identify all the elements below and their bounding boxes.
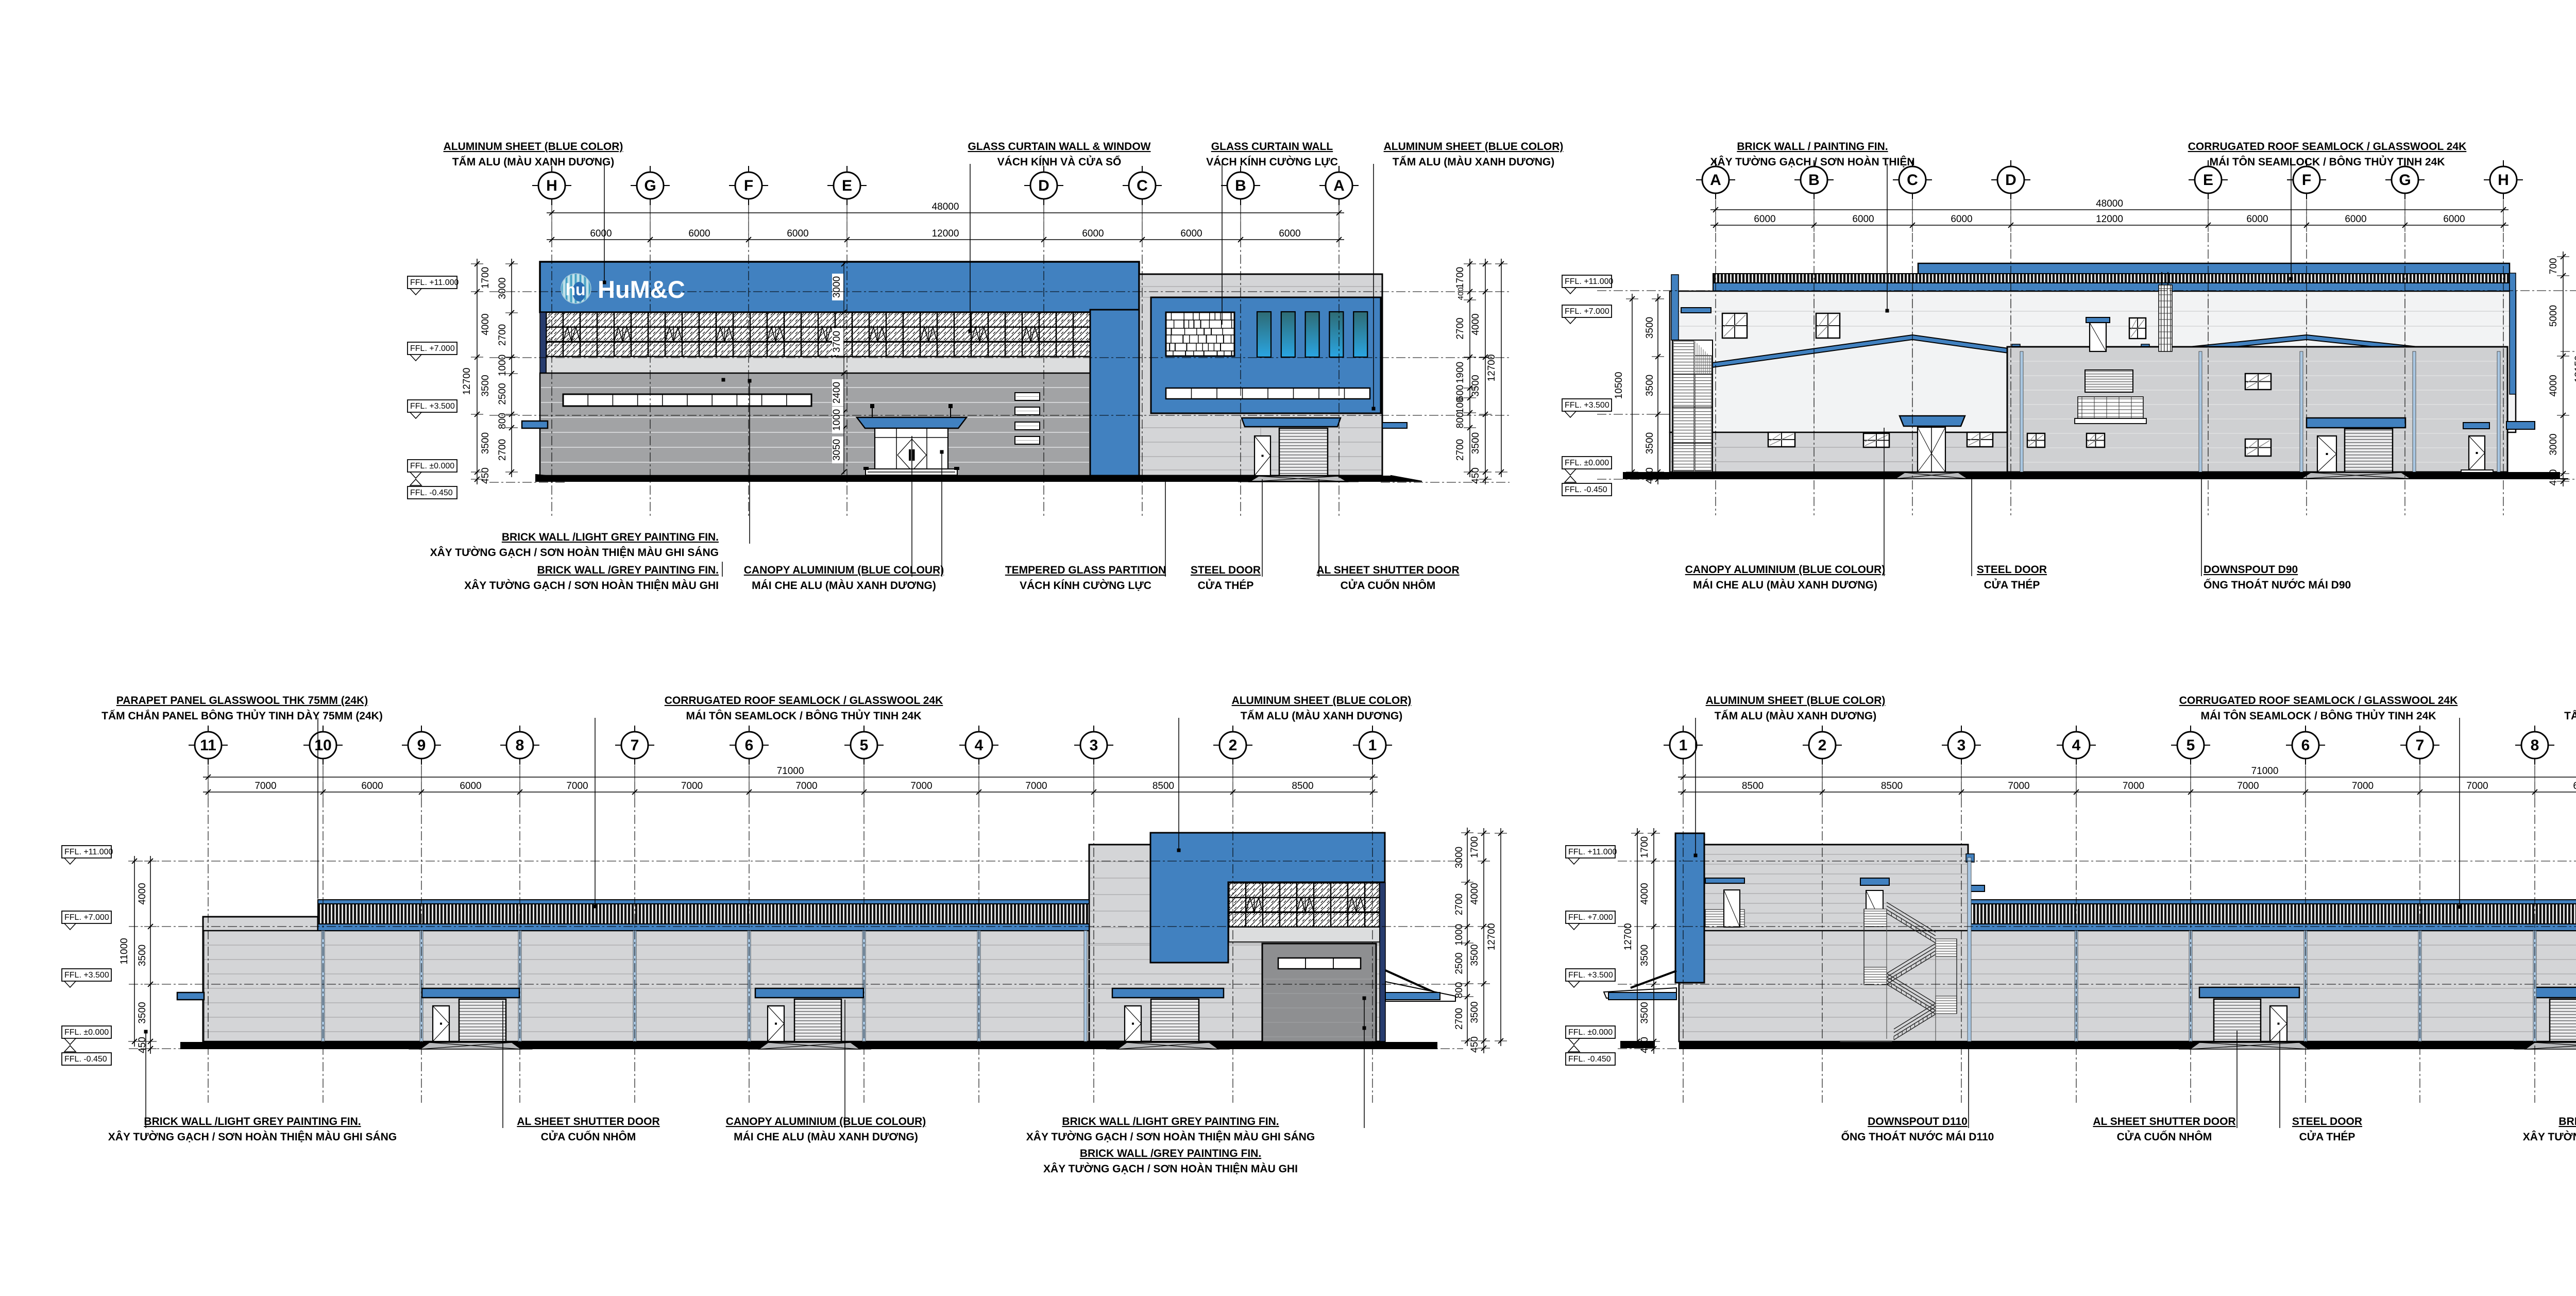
svg-text:12000: 12000 <box>932 228 959 239</box>
svg-text:FFL. +3.500: FFL. +3.500 <box>64 971 109 980</box>
svg-text:700: 700 <box>2548 258 2559 275</box>
svg-text:800: 800 <box>497 413 508 429</box>
svg-text:1000: 1000 <box>832 409 842 431</box>
svg-text:450: 450 <box>1639 1037 1650 1053</box>
svg-text:2400: 2400 <box>832 382 842 403</box>
svg-text:71000: 71000 <box>2251 766 2279 777</box>
svg-text:FFL. +3.500: FFL. +3.500 <box>1568 971 1613 980</box>
svg-text:2700: 2700 <box>1455 439 1466 461</box>
svg-text:2700: 2700 <box>1455 317 1466 339</box>
svg-text:7000: 7000 <box>2123 781 2144 792</box>
svg-text:BRICK WALL /LIGHT GREY PAINTIN: BRICK WALL /LIGHT GREY PAINTING FIN. <box>502 531 719 543</box>
svg-text:AL SHEET SHUTTER DOOR: AL SHEET SHUTTER DOOR <box>2093 1116 2235 1127</box>
svg-text:STEEL DOOR: STEEL DOOR <box>1191 564 1261 576</box>
svg-text:B: B <box>1235 177 1246 194</box>
svg-text:6000: 6000 <box>688 228 710 239</box>
svg-text:11: 11 <box>200 737 216 754</box>
svg-text:FFL. -0.450: FFL. -0.450 <box>410 489 453 497</box>
svg-text:4000: 4000 <box>480 313 491 335</box>
svg-text:450: 450 <box>1645 467 1655 484</box>
svg-text:BRICK WALL /LIGHT GREY PAINTIN: BRICK WALL /LIGHT GREY PAINTING FIN. <box>144 1116 361 1127</box>
svg-text:12700: 12700 <box>462 368 472 395</box>
svg-text:8500: 8500 <box>1153 781 1174 792</box>
svg-text:A: A <box>1333 177 1345 194</box>
svg-text:3500: 3500 <box>1469 944 1480 966</box>
svg-text:HuM&C: HuM&C <box>598 276 685 303</box>
svg-text:6: 6 <box>2301 737 2310 754</box>
svg-text:FFL. ±0.000: FFL. ±0.000 <box>64 1028 109 1037</box>
svg-text:F: F <box>744 177 753 194</box>
svg-text:XÂY TƯỜNG GẠCH / SƠN HOÀN THIỆ: XÂY TƯỜNG GẠCH / SƠN HOÀN THIỆN MÀU GHI <box>464 579 719 592</box>
svg-text:FFL. +11.000: FFL. +11.000 <box>1568 848 1617 856</box>
svg-text:CORRUGATED ROOF SEAMLOCK / GLA: CORRUGATED ROOF SEAMLOCK / GLASSWOOL 24K <box>2188 141 2467 153</box>
svg-text:7000: 7000 <box>2008 781 2029 792</box>
svg-text:FFL. +11.000: FFL. +11.000 <box>1565 277 1614 286</box>
svg-text:XÂY TƯỜNG GẠCH / SƠN HOÀN THIỆ: XÂY TƯỜNG GẠCH / SƠN HOÀN THIỆN MÀU GHI … <box>1026 1131 1315 1143</box>
svg-text:E: E <box>2203 172 2213 189</box>
svg-text:VÁCH KÍNH CƯỜNG LỰC: VÁCH KÍNH CƯỜNG LỰC <box>1206 156 1338 168</box>
svg-text:2700: 2700 <box>497 324 508 346</box>
svg-text:100: 100 <box>1455 397 1466 414</box>
svg-text:C: C <box>1137 177 1148 194</box>
svg-text:3000: 3000 <box>1454 847 1465 868</box>
svg-text:8: 8 <box>516 737 524 754</box>
svg-text:MÁI CHE ALU (MÀU XANH DƯƠNG): MÁI CHE ALU (MÀU XANH DƯƠNG) <box>752 580 936 592</box>
svg-text:MÁI TÔN SEAMLOCK / BÔNG THỦY T: MÁI TÔN SEAMLOCK / BÔNG THỦY TINH 24K <box>2201 710 2436 722</box>
svg-text:TẤM ALU (MÀU XANH DƯƠNG): TẤM ALU (MÀU XANH DƯƠNG) <box>1715 710 1877 722</box>
svg-text:TẤM ALU (MÀU XANH DƯƠNG): TẤM ALU (MÀU XANH DƯƠNG) <box>452 156 615 168</box>
svg-text:BRICK WALL /LIGHT GREY PAINTIN: BRICK WALL /LIGHT GREY PAINTING FIN. <box>1062 1116 1279 1127</box>
svg-text:FFL. +7.000: FFL. +7.000 <box>64 913 109 922</box>
svg-text:D: D <box>2005 172 2016 189</box>
svg-text:TẤM CHẮN PANEL BÔNG THỦY TINH: TẤM CHẮN PANEL BÔNG THỦY TINH DÀY 75MM (… <box>101 710 383 722</box>
svg-text:1000: 1000 <box>1454 924 1465 946</box>
svg-text:CANOPY ALUMINIUM (BLUE COLOUR): CANOPY ALUMINIUM (BLUE COLOUR) <box>726 1116 926 1127</box>
svg-text:BRICK WALL /GREY PAINTING FIN.: BRICK WALL /GREY PAINTING FIN. <box>1080 1148 1261 1159</box>
svg-text:PARAPET PANEL GLASSWOOL THK 75: PARAPET PANEL GLASSWOOL THK 75MM (24K) <box>116 695 368 706</box>
svg-text:10500: 10500 <box>1614 372 1624 399</box>
svg-text:2500: 2500 <box>497 383 508 405</box>
svg-text:10: 10 <box>314 737 331 754</box>
svg-text:3500: 3500 <box>1470 432 1481 454</box>
svg-text:7000: 7000 <box>1025 781 1047 792</box>
svg-text:TEMPERED GLASS PARTITION: TEMPERED GLASS PARTITION <box>1005 564 1166 576</box>
svg-text:CANOPY ALUMINIUM (BLUE COLOUR): CANOPY ALUMINIUM (BLUE COLOUR) <box>744 564 944 576</box>
svg-text:4000: 4000 <box>2548 375 2559 396</box>
svg-text:12700: 12700 <box>1623 923 1634 951</box>
svg-text:3050: 3050 <box>832 439 842 461</box>
svg-text:ỐNG THOÁT NƯỚC MÁI D110: ỐNG THOÁT NƯỚC MÁI D110 <box>1841 1131 1994 1143</box>
svg-text:BRICK WALL / PAINTING FIN.: BRICK WALL / PAINTING FIN. <box>1737 141 1888 153</box>
svg-text:48000: 48000 <box>932 201 959 212</box>
svg-text:FFL. ±0.000: FFL. ±0.000 <box>410 462 454 470</box>
svg-text:8500: 8500 <box>1292 781 1313 792</box>
svg-text:STEEL DOOR: STEEL DOOR <box>2292 1116 2362 1127</box>
svg-text:3500: 3500 <box>1645 317 1655 339</box>
svg-text:800: 800 <box>1455 412 1466 429</box>
svg-text:6000: 6000 <box>2345 214 2366 225</box>
svg-text:B: B <box>1808 172 1820 189</box>
svg-text:TẤM ALU (MÀU XANH DƯƠNG): TẤM ALU (MÀU XANH DƯƠNG) <box>1241 710 1403 722</box>
svg-text:4: 4 <box>2072 737 2081 754</box>
svg-text:450: 450 <box>1469 1036 1480 1053</box>
svg-text:3: 3 <box>1957 737 1966 754</box>
svg-text:1: 1 <box>1368 737 1377 754</box>
svg-text:3500: 3500 <box>1639 1002 1650 1023</box>
svg-text:D: D <box>1038 177 1049 194</box>
svg-text:DOWNSPOUT D90: DOWNSPOUT D90 <box>2204 564 2298 576</box>
svg-text:DOWNSPOUT D110: DOWNSPOUT D110 <box>1868 1116 1968 1127</box>
svg-text:FFL. ±0.000: FFL. ±0.000 <box>1568 1028 1613 1037</box>
svg-text:G: G <box>2399 172 2411 189</box>
svg-text:FFL. +7.000: FFL. +7.000 <box>1568 913 1613 922</box>
svg-text:400: 400 <box>1456 287 1465 300</box>
svg-text:TẤM ALU (MÀU XANH DƯƠNG): TẤM ALU (MÀU XANH DƯƠNG) <box>1393 156 1555 168</box>
svg-text:MÁI CHE ALU (MÀU XANH DƯƠNG): MÁI CHE ALU (MÀU XANH DƯƠNG) <box>734 1131 918 1143</box>
svg-text:2: 2 <box>1818 737 1827 754</box>
svg-text:1900: 1900 <box>1455 362 1466 383</box>
svg-text:FFL. -0.450: FFL. -0.450 <box>64 1055 107 1064</box>
svg-text:6000: 6000 <box>2443 214 2465 225</box>
svg-text:F: F <box>2302 172 2311 189</box>
svg-text:7000: 7000 <box>255 781 276 792</box>
svg-text:6000: 6000 <box>2573 781 2576 792</box>
svg-text:1: 1 <box>1679 737 1688 754</box>
svg-text:7: 7 <box>2416 737 2425 754</box>
svg-text:4000: 4000 <box>1639 883 1650 904</box>
svg-text:7000: 7000 <box>2352 781 2374 792</box>
svg-text:6000: 6000 <box>2246 214 2268 225</box>
svg-text:3500: 3500 <box>1470 375 1481 396</box>
svg-text:XÂY TƯỜNG GẠCH / SƠN HOÀN THIỆ: XÂY TƯỜNG GẠCH / SƠN HOÀN THIỆN MÀU GHI … <box>108 1131 397 1143</box>
svg-text:71000: 71000 <box>777 766 804 777</box>
svg-text:2700: 2700 <box>1454 894 1465 915</box>
svg-text:E: E <box>842 177 852 194</box>
svg-text:3500: 3500 <box>1645 432 1655 454</box>
svg-text:FFL. ±0.000: FFL. ±0.000 <box>1565 459 1609 467</box>
svg-text:CỬA CUỐN NHÔM: CỬA CUỐN NHÔM <box>541 1131 636 1143</box>
svg-text:GLASS CURTAIN WALL & WINDOW: GLASS CURTAIN WALL & WINDOW <box>968 141 1150 153</box>
svg-text:4000: 4000 <box>1469 883 1480 904</box>
svg-text:CORRUGATED ROOF SEAMLOCK / GLA: CORRUGATED ROOF SEAMLOCK / GLASSWOOL 24K <box>665 695 943 706</box>
svg-text:450: 450 <box>480 467 491 484</box>
svg-text:8: 8 <box>2531 737 2539 754</box>
svg-text:ỐNG THOÁT NƯỚC MÁI D90: ỐNG THOÁT NƯỚC MÁI D90 <box>2204 579 2351 591</box>
svg-text:12700: 12700 <box>1486 923 1497 951</box>
svg-text:6000: 6000 <box>1180 228 1202 239</box>
svg-text:FFL. -0.450: FFL. -0.450 <box>1565 485 1607 494</box>
svg-text:13150: 13150 <box>2573 356 2576 383</box>
svg-text:1700: 1700 <box>480 267 491 289</box>
svg-text:3500: 3500 <box>137 1002 148 1023</box>
svg-text:7000: 7000 <box>2466 781 2488 792</box>
svg-text:ALUMINUM SHEET (BLUE COLOR): ALUMINUM SHEET (BLUE COLOR) <box>1384 141 1564 153</box>
svg-text:2: 2 <box>1229 737 1238 754</box>
svg-text:6000: 6000 <box>460 781 481 792</box>
svg-text:XÂY TƯỜNG GẠCH / SƠN HOÀN THIỆ: XÂY TƯỜNG GẠCH / SƠN HOÀN THIỆN MÀU GHI … <box>2523 1131 2576 1143</box>
svg-text:2700: 2700 <box>1454 1008 1465 1030</box>
svg-text:4000: 4000 <box>1470 313 1481 335</box>
svg-text:3500: 3500 <box>1469 1001 1480 1023</box>
svg-text:48000: 48000 <box>2096 198 2123 209</box>
svg-text:3000: 3000 <box>497 277 508 299</box>
svg-text:XÂY TƯỜNG GẠCH / SƠN HOÀN THIỆ: XÂY TƯỜNG GẠCH / SƠN HOÀN THIỆN <box>1710 156 1914 168</box>
svg-text:CỬA THÉP: CỬA THÉP <box>1198 579 1254 592</box>
svg-text:FFL. +3.500: FFL. +3.500 <box>1565 401 1609 410</box>
svg-text:6000: 6000 <box>1951 214 1972 225</box>
svg-text:ALUMINUM SHEET (BLUE COLOR): ALUMINUM SHEET (BLUE COLOR) <box>1232 695 1412 706</box>
svg-text:1700: 1700 <box>1455 267 1466 289</box>
svg-text:VÁCH KÍNH VÀ CỬA SỔ: VÁCH KÍNH VÀ CỬA SỔ <box>997 156 1122 168</box>
svg-text:FFL. +11.000: FFL. +11.000 <box>410 278 459 287</box>
svg-text:450: 450 <box>137 1037 148 1053</box>
svg-text:C: C <box>1907 172 1918 189</box>
svg-text:7: 7 <box>631 737 639 754</box>
svg-text:VÁCH KÍNH CƯỜNG LỰC: VÁCH KÍNH CƯỜNG LỰC <box>1020 579 1151 592</box>
svg-text:6000: 6000 <box>1082 228 1104 239</box>
svg-text:12700: 12700 <box>1486 355 1497 382</box>
svg-text:FFL. +11.000: FFL. +11.000 <box>64 848 113 856</box>
svg-text:4000: 4000 <box>137 883 148 904</box>
svg-text:CỬA CUỐN NHÔM: CỬA CUỐN NHÔM <box>1341 579 1436 592</box>
svg-text:5000: 5000 <box>2548 305 2559 327</box>
svg-text:4: 4 <box>975 737 984 754</box>
svg-text:FFL. +7.000: FFL. +7.000 <box>410 344 455 353</box>
svg-text:TẤM CHẮN PANEL BÔNG THỦY TINH: TẤM CHẮN PANEL BÔNG THỦY TINH DÀY 75MM (… <box>2564 710 2576 722</box>
svg-text:hu: hu <box>565 280 585 299</box>
svg-text:GLASS CURTAIN WALL: GLASS CURTAIN WALL <box>1211 141 1333 153</box>
svg-text:8500: 8500 <box>1742 781 1764 792</box>
svg-text:CORRUGATED ROOF SEAMLOCK / GLA: CORRUGATED ROOF SEAMLOCK / GLASSWOOL 24K <box>2179 695 2458 706</box>
svg-text:CỬA CUỐN NHÔM: CỬA CUỐN NHÔM <box>2117 1131 2212 1143</box>
svg-text:6000: 6000 <box>590 228 612 239</box>
svg-text:2700: 2700 <box>497 439 508 461</box>
svg-text:7000: 7000 <box>681 781 703 792</box>
svg-text:800: 800 <box>1454 982 1465 999</box>
svg-text:11000: 11000 <box>119 938 130 964</box>
svg-text:CANOPY ALUMINIUM (BLUE COLOUR): CANOPY ALUMINIUM (BLUE COLOUR) <box>1685 564 1885 576</box>
svg-text:FFL. -0.450: FFL. -0.450 <box>1568 1055 1611 1064</box>
svg-text:3700: 3700 <box>832 331 842 352</box>
svg-text:6000: 6000 <box>1754 214 1775 225</box>
svg-text:ALUMINUM SHEET (BLUE COLOR): ALUMINUM SHEET (BLUE COLOR) <box>1706 695 1886 706</box>
svg-text:5: 5 <box>2187 737 2195 754</box>
svg-text:A: A <box>1710 172 1721 189</box>
svg-text:AL SHEET SHUTTER DOOR: AL SHEET SHUTTER DOOR <box>517 1116 659 1127</box>
svg-text:3500: 3500 <box>1639 945 1650 966</box>
svg-text:9: 9 <box>417 737 426 754</box>
svg-text:5: 5 <box>860 737 869 754</box>
svg-text:3500: 3500 <box>137 945 148 966</box>
svg-text:XÂY TƯỜNG GẠCH / SƠN HOÀN THIỆ: XÂY TƯỜNG GẠCH / SƠN HOÀN THIỆN MÀU GHI … <box>430 546 719 559</box>
svg-text:MÁI TÔN SEAMLOCK / BÔNG THỦY T: MÁI TÔN SEAMLOCK / BÔNG THỦY TINH 24K <box>2210 156 2445 168</box>
svg-text:1000: 1000 <box>497 355 508 376</box>
svg-text:7000: 7000 <box>566 781 588 792</box>
svg-text:6000: 6000 <box>787 228 808 239</box>
svg-text:7000: 7000 <box>795 781 817 792</box>
svg-text:BRICK WALL /LIGHT GREY PAINTIN: BRICK WALL /LIGHT GREY PAINTING FIN. <box>2558 1116 2576 1127</box>
svg-text:3000: 3000 <box>832 276 842 298</box>
svg-text:FFL. +7.000: FFL. +7.000 <box>1565 307 1609 316</box>
svg-text:450: 450 <box>1470 467 1481 484</box>
svg-text:3000: 3000 <box>2548 433 2559 455</box>
svg-text:1700: 1700 <box>1639 836 1650 858</box>
svg-text:H: H <box>546 177 557 194</box>
svg-text:6000: 6000 <box>1279 228 1300 239</box>
svg-text:7000: 7000 <box>2237 781 2259 792</box>
svg-text:ALUMINUM SHEET (BLUE COLOR): ALUMINUM SHEET (BLUE COLOR) <box>444 141 623 153</box>
svg-text:6000: 6000 <box>361 781 383 792</box>
svg-text:2500: 2500 <box>1454 952 1465 974</box>
svg-text:AL SHEET SHUTTER DOOR: AL SHEET SHUTTER DOOR <box>1316 564 1459 576</box>
svg-text:G: G <box>644 177 656 194</box>
svg-text:CỬA THÉP: CỬA THÉP <box>2299 1131 2355 1143</box>
svg-text:MÁI TÔN SEAMLOCK / BÔNG THỦY T: MÁI TÔN SEAMLOCK / BÔNG THỦY TINH 24K <box>686 710 922 722</box>
svg-text:1700: 1700 <box>1469 836 1480 858</box>
svg-text:3500: 3500 <box>1645 375 1655 396</box>
svg-text:7000: 7000 <box>910 781 932 792</box>
svg-text:450: 450 <box>2548 469 2559 486</box>
svg-text:H: H <box>2498 172 2509 189</box>
svg-text:6: 6 <box>745 737 754 754</box>
svg-text:FFL. +3.500: FFL. +3.500 <box>410 402 455 411</box>
svg-text:3500: 3500 <box>480 375 491 396</box>
svg-text:STEEL DOOR: STEEL DOOR <box>1977 564 2047 576</box>
svg-text:12000: 12000 <box>2096 214 2123 225</box>
svg-text:XÂY TƯỜNG GẠCH / SƠN HOÀN THIỆ: XÂY TƯỜNG GẠCH / SƠN HOÀN THIỆN MÀU GHI <box>1043 1163 1298 1175</box>
svg-text:3: 3 <box>1090 737 1098 754</box>
svg-text:MÁI CHE ALU (MÀU XANH DƯƠNG): MÁI CHE ALU (MÀU XANH DƯƠNG) <box>1693 579 1877 591</box>
svg-text:3500: 3500 <box>480 432 491 454</box>
svg-text:BRICK WALL /GREY PAINTING FIN.: BRICK WALL /GREY PAINTING FIN. <box>537 564 719 576</box>
svg-text:CỬA THÉP: CỬA THÉP <box>1984 579 2040 591</box>
svg-text:8500: 8500 <box>1881 781 1903 792</box>
svg-text:6000: 6000 <box>1852 214 1874 225</box>
